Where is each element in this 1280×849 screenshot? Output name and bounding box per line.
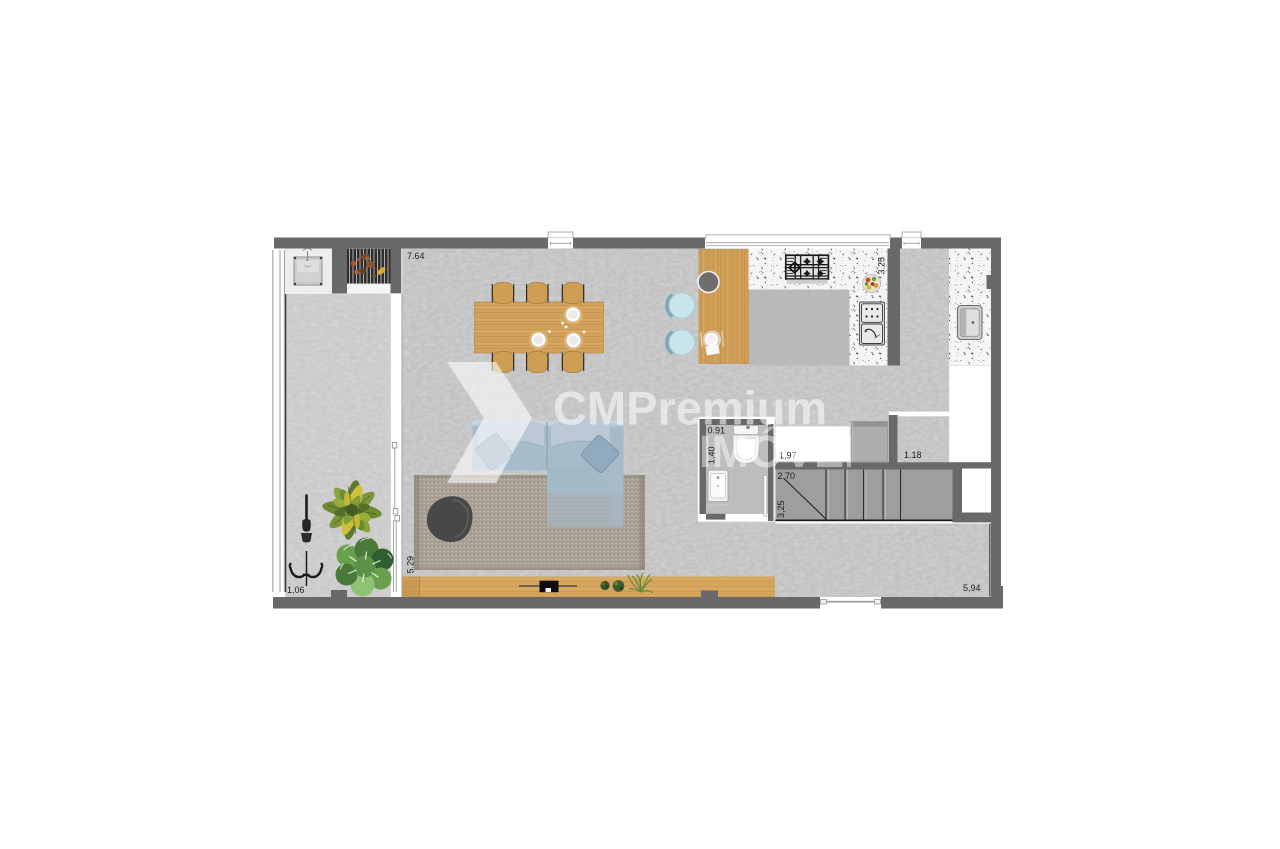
svg-text:5.29: 5.29 <box>406 556 416 574</box>
svg-text:1,06: 1,06 <box>287 585 305 595</box>
svg-text:3.25: 3.25 <box>877 257 887 275</box>
svg-text:7.64: 7.64 <box>407 251 425 261</box>
svg-text:1.18: 1.18 <box>904 450 922 460</box>
svg-text:5,94: 5,94 <box>963 583 981 593</box>
svg-text:3,25: 3,25 <box>776 500 786 518</box>
